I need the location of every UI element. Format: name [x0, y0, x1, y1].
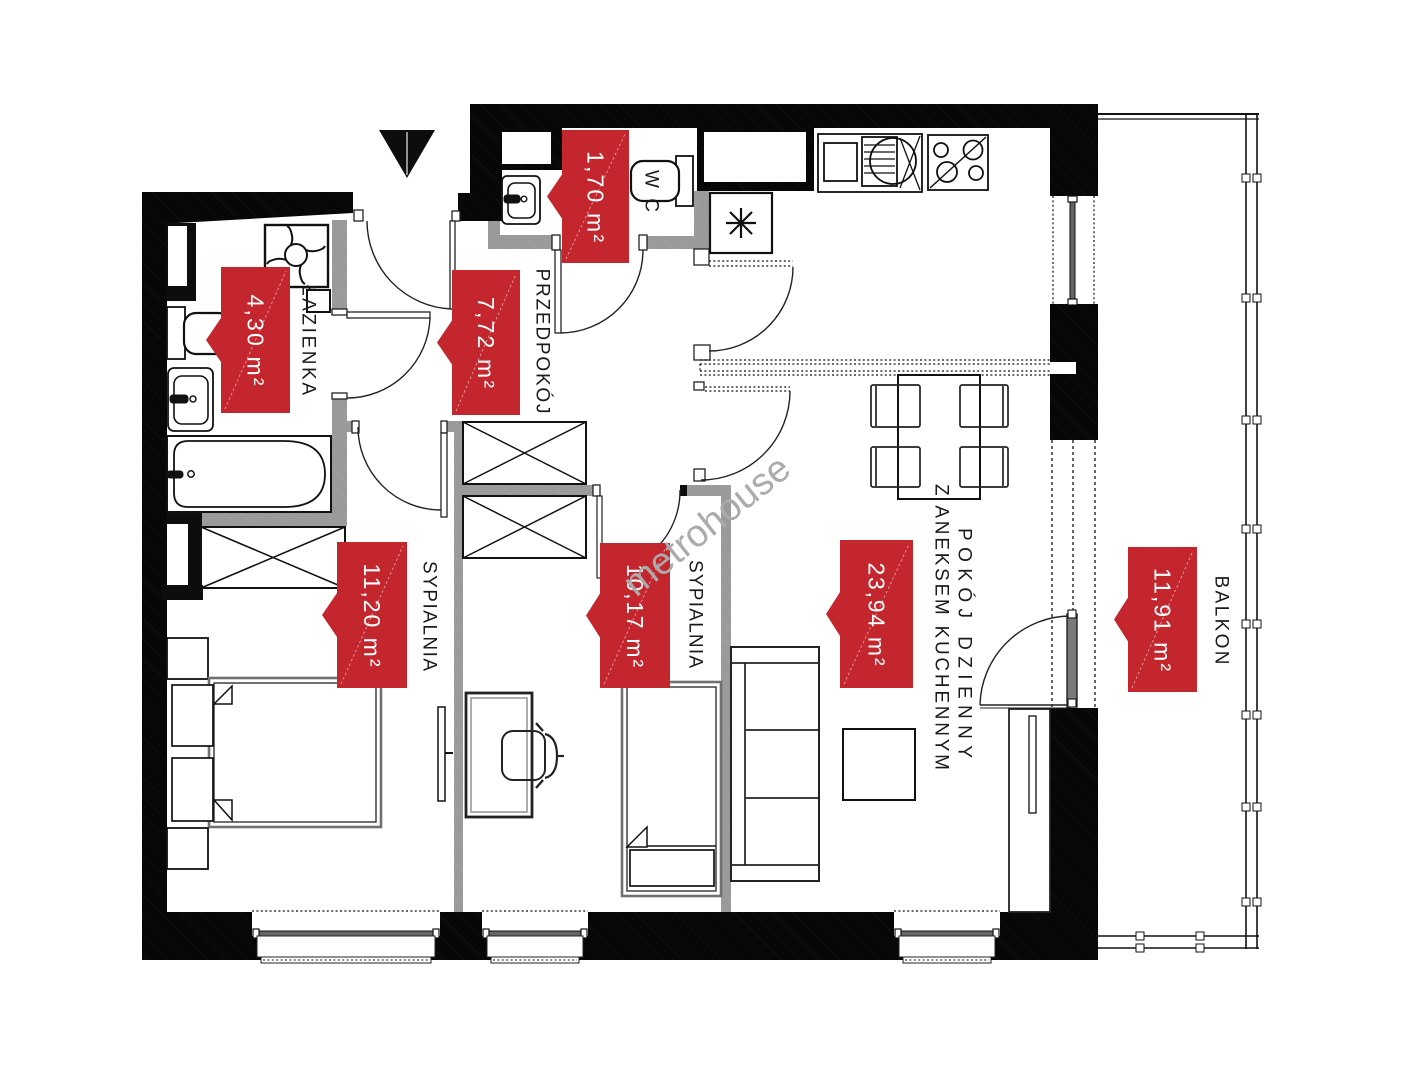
- svg-text:23,94 m²: 23,94 m²: [864, 563, 890, 666]
- svg-text:PRZEDPOKÓJ: PRZEDPOKÓJ: [532, 269, 554, 414]
- svg-text:Z ANEKSEM KUCHENNYM: Z ANEKSEM KUCHENNYM: [931, 484, 952, 770]
- svg-text:11,91 m²: 11,91 m²: [1150, 568, 1176, 671]
- svg-text:SYPIALNIA: SYPIALNIA: [419, 561, 440, 671]
- svg-text:ŁAZIENKA: ŁAZIENKA: [298, 285, 319, 395]
- svg-text:11,20 m²: 11,20 m²: [359, 564, 385, 667]
- svg-text:SYPIALNIA: SYPIALNIA: [685, 560, 706, 668]
